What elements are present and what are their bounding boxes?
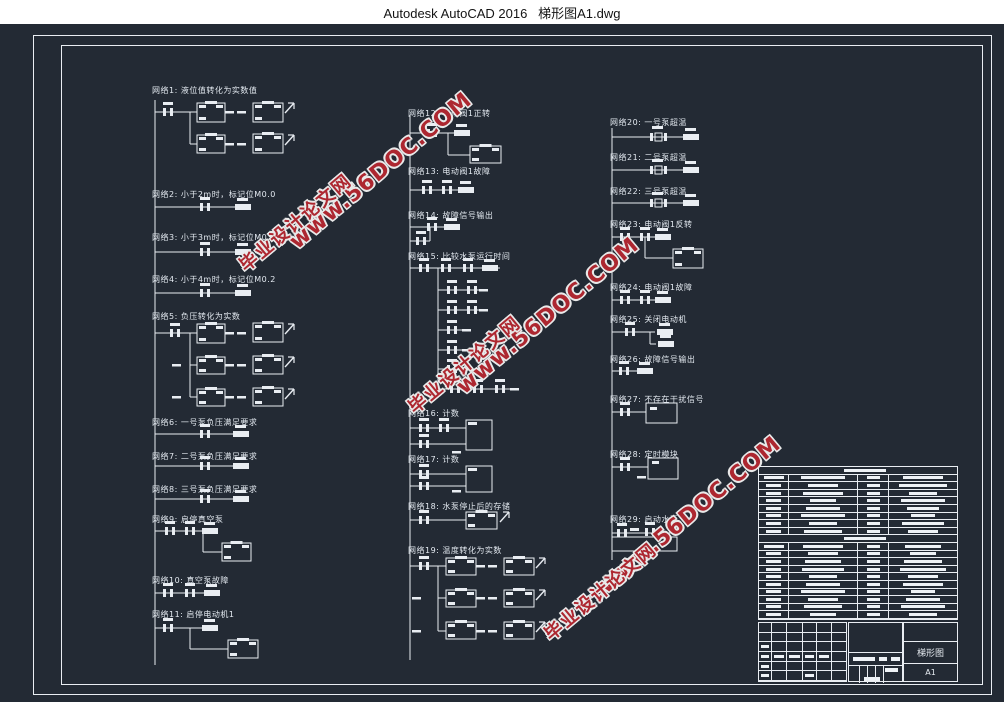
revision-cell	[787, 623, 803, 632]
network-label-8: 网络8: 三号泵负压满足要求	[152, 485, 257, 494]
revision-cell	[759, 652, 772, 661]
window-title: Autodesk AutoCAD 2016 梯形图A1.dwg	[0, 0, 1004, 24]
network-18-rung	[410, 510, 509, 529]
network-10-rung	[155, 583, 220, 597]
io-table-cell	[889, 528, 957, 535]
revision-row	[759, 662, 846, 672]
network-label-11: 网络11: 启停电动机1	[152, 610, 235, 619]
network-2-rung	[155, 197, 251, 211]
revision-cell	[787, 633, 803, 642]
network-24-rung	[612, 290, 671, 304]
revision-cell	[803, 623, 817, 632]
network-16-rung	[410, 418, 492, 454]
stamp-field-bar	[885, 668, 898, 672]
io-table-cell	[889, 581, 957, 588]
revision-cell	[817, 642, 832, 651]
io-table-cell	[789, 573, 858, 580]
io-table-row	[759, 596, 957, 604]
revision-table	[758, 622, 847, 682]
io-table-cell	[789, 596, 858, 603]
network-label-20: 网络20: 一号泵超温	[610, 118, 687, 127]
network-label-15: 网络15: 比较水泵运行时间	[408, 252, 510, 261]
title-block-empty-cell	[903, 622, 958, 642]
io-table-row	[759, 566, 957, 574]
io-table-cell	[858, 520, 889, 527]
io-table-cell	[759, 543, 789, 550]
revision-cell	[772, 662, 787, 671]
io-table-row	[759, 520, 957, 528]
network-label-5: 网络5: 负压转化为实数	[152, 312, 240, 321]
network-11-rung	[155, 618, 258, 658]
stamp-box	[848, 622, 903, 653]
io-table-cell	[858, 573, 889, 580]
revision-row	[759, 633, 846, 643]
io-table-cell	[759, 513, 789, 520]
io-table-row	[759, 573, 957, 581]
stamp-field-bar	[879, 657, 887, 661]
io-table-row	[759, 589, 957, 597]
io-table-cell	[789, 505, 858, 512]
revision-cell	[817, 671, 832, 680]
io-table-row	[759, 497, 957, 505]
io-table-row	[759, 581, 957, 589]
network-label-18: 网络18: 水泵停止后的存储	[408, 502, 510, 511]
io-table-cell	[889, 505, 957, 512]
network-label-19: 网络19: 温度转化为实数	[408, 546, 502, 555]
io-table-cell	[858, 475, 889, 482]
io-table-cell	[889, 573, 957, 580]
io-table-cell	[789, 604, 858, 611]
io-table-row	[759, 551, 957, 559]
io-table-cell	[789, 520, 858, 527]
revision-row	[759, 642, 846, 652]
revision-cell	[772, 642, 787, 651]
io-table-row	[759, 490, 957, 498]
io-table-cell	[759, 573, 789, 580]
io-table-cell	[789, 566, 858, 573]
network-28-rung	[612, 457, 678, 479]
io-table-cell	[789, 611, 858, 618]
revision-cell	[759, 642, 772, 651]
io-table-cell	[789, 513, 858, 520]
network-label-22: 网络22: 三号泵超温	[610, 187, 687, 196]
revision-cell	[787, 642, 803, 651]
io-table-cell	[759, 490, 789, 497]
network-label-10: 网络10: 真空泵故障	[152, 576, 229, 585]
network-label-13: 网络13: 电动阀1故障	[408, 167, 491, 176]
io-table-row	[759, 611, 957, 619]
network-label-23: 网络23: 电动阀1反转	[610, 220, 693, 229]
network-17-rung	[410, 464, 492, 493]
io-table-cell	[759, 604, 789, 611]
title-block-drawing-name: 梯形图	[903, 641, 958, 664]
io-table-cell	[858, 604, 889, 611]
io-table-cell	[789, 482, 858, 489]
io-table-cell	[759, 581, 789, 588]
io-table-cell	[889, 558, 957, 565]
revision-cell	[832, 662, 846, 671]
io-table-cell	[858, 551, 889, 558]
revision-cell	[803, 642, 817, 651]
io-table-cell	[858, 528, 889, 535]
io-table-row	[759, 604, 957, 612]
io-table-cell	[858, 513, 889, 520]
io-table-cell	[759, 528, 789, 535]
revision-cell	[759, 671, 772, 680]
network-25-rung	[612, 322, 674, 347]
io-table-cell	[858, 566, 889, 573]
revision-cell	[772, 633, 787, 642]
io-table-cell	[759, 475, 789, 482]
revision-cell	[759, 623, 772, 632]
stamp-fields	[848, 652, 903, 682]
network-13-rung	[410, 180, 474, 194]
io-table-cell	[858, 497, 889, 504]
revision-cell	[803, 671, 817, 680]
revision-cell	[772, 671, 787, 680]
revision-cell	[787, 662, 803, 671]
io-table-row	[759, 535, 957, 543]
io-table-row	[759, 528, 957, 536]
io-table-cell	[789, 589, 858, 596]
io-table-cell	[789, 551, 858, 558]
network-14-rung	[410, 217, 460, 245]
io-table-row	[759, 558, 957, 566]
revision-cell	[787, 652, 803, 661]
network-label-4: 网络4: 小于4m时，标记位M0.2	[152, 275, 276, 284]
io-table-cell	[889, 589, 957, 596]
revision-cell	[817, 633, 832, 642]
network-label-21: 网络21: 二号泵超温	[610, 153, 687, 162]
io-table-cell	[889, 543, 957, 550]
io-table-cell	[759, 520, 789, 527]
io-table-row	[759, 513, 957, 521]
io-table-cell	[789, 581, 858, 588]
network-label-9: 网络9: 启停真空泵	[152, 515, 223, 524]
network-19-rung	[410, 556, 545, 639]
revision-cell	[803, 633, 817, 642]
io-table-cell	[858, 611, 889, 618]
io-table-cell	[789, 543, 858, 550]
io-table-cell	[858, 543, 889, 550]
io-allocation-table	[758, 466, 958, 620]
io-table-cell	[858, 589, 889, 596]
network-27-rung	[612, 402, 677, 423]
revision-cell	[759, 662, 772, 671]
revision-cell	[803, 652, 817, 661]
revision-cell	[772, 652, 787, 661]
io-table-cell	[858, 505, 889, 512]
network-label-28: 网络28: 定时模块	[610, 450, 678, 459]
io-table-cell	[889, 482, 957, 489]
io-table-row	[759, 467, 957, 475]
io-table-row	[759, 482, 957, 490]
network-label-27: 网络27: 不存在干扰信号	[610, 395, 704, 404]
revision-cell	[817, 662, 832, 671]
io-table-cell	[889, 513, 957, 520]
io-table-cell	[759, 497, 789, 504]
revision-cell	[832, 671, 846, 680]
io-table-cell	[789, 558, 858, 565]
revision-cell	[832, 652, 846, 661]
network-5-rung	[155, 321, 294, 406]
network-20-rung	[612, 126, 699, 141]
io-table-cell	[889, 596, 957, 603]
network-label-25: 网络25: 关闭电动机	[610, 315, 687, 324]
network-label-2: 网络2: 小于2m时，标记位M0.0	[152, 190, 276, 199]
io-table-cell	[759, 505, 789, 512]
io-table-cell	[858, 482, 889, 489]
revision-cell	[817, 652, 832, 661]
revision-cell	[817, 623, 832, 632]
revision-row	[759, 623, 846, 633]
io-table-cell	[789, 497, 858, 504]
io-table-cell	[889, 475, 957, 482]
io-table-cell	[889, 566, 957, 573]
revision-cell	[759, 633, 772, 642]
revision-row	[759, 652, 846, 662]
io-table-cell	[889, 497, 957, 504]
io-table-cell	[759, 558, 789, 565]
network-label-26: 网络26: 故障信号输出	[610, 355, 695, 364]
revision-cell	[772, 623, 787, 632]
revision-cell	[803, 662, 817, 671]
network-label-17: 网络17: 计数	[408, 455, 459, 464]
io-table-cell	[759, 589, 789, 596]
network-1-rung	[155, 101, 294, 153]
revision-row	[759, 671, 846, 681]
title-block-sheet: A1	[903, 663, 958, 682]
io-table-row	[759, 505, 957, 513]
io-table-cell	[889, 551, 957, 558]
revision-cell	[832, 642, 846, 651]
network-label-14: 网络14: 故障信号输出	[408, 211, 493, 220]
stamp-field-bar	[891, 657, 900, 661]
io-table-cell	[858, 581, 889, 588]
io-table-cell	[789, 475, 858, 482]
revision-cell	[787, 671, 803, 680]
io-table-cell	[858, 490, 889, 497]
revision-cell	[832, 633, 846, 642]
io-table-cell	[889, 520, 957, 527]
network-4-rung	[155, 283, 251, 297]
network-label-6: 网络6: 一号泵负压满足要求	[152, 418, 257, 427]
io-table-cell	[858, 596, 889, 603]
network-label-7: 网络7: 二号泵负压满足要求	[152, 452, 257, 461]
network-label-24: 网络24: 电动阀1故障	[610, 283, 693, 292]
io-table-cell	[889, 604, 957, 611]
stamp-field-bar	[853, 657, 875, 661]
io-table-cell	[759, 611, 789, 618]
io-table-cell	[889, 490, 957, 497]
io-table-cell	[759, 566, 789, 573]
io-table-cell	[759, 551, 789, 558]
io-table-cell	[789, 528, 858, 535]
revision-cell	[832, 623, 846, 632]
io-table-cell	[858, 558, 889, 565]
io-table-cell	[889, 611, 957, 618]
network-9-rung	[155, 521, 251, 561]
io-table-cell	[789, 490, 858, 497]
autocad-window: Autodesk AutoCAD 2016 梯形图A1.dwg 网络1: 液位值…	[0, 0, 1004, 702]
io-table-row	[759, 475, 957, 483]
io-table-cell	[759, 596, 789, 603]
network-label-1: 网络1: 液位值转化为实数值	[152, 86, 257, 95]
io-table-row	[759, 543, 957, 551]
io-table-cell	[759, 482, 789, 489]
